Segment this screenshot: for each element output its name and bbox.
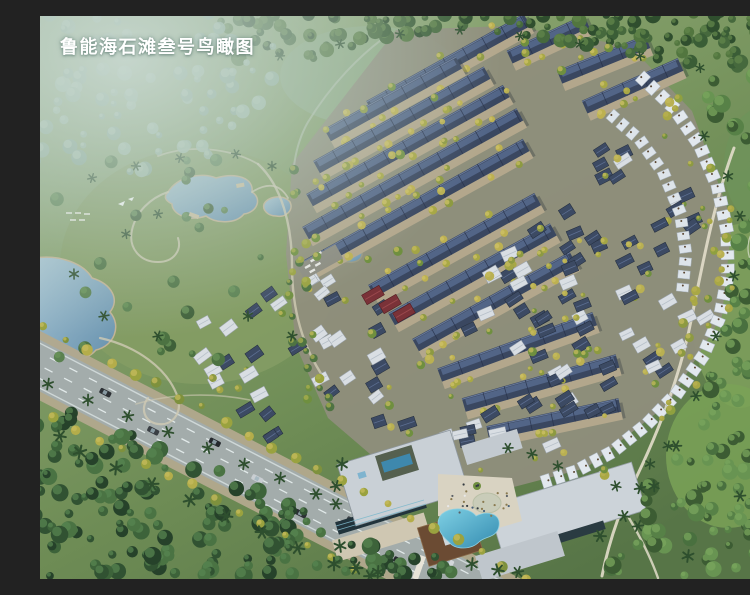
rendering-canvas xyxy=(40,16,750,579)
arc-row-house xyxy=(679,257,692,266)
fog-overlay xyxy=(40,16,510,366)
arc-row-house xyxy=(678,270,691,279)
arc-row-house xyxy=(677,231,690,241)
aerial-rendering: 鲁能海石滩叁号鸟瞰图 xyxy=(40,16,750,579)
arc-row-house xyxy=(676,283,689,292)
image-title: 鲁能海石滩叁号鸟瞰图 xyxy=(60,33,255,59)
arc-row-house xyxy=(679,244,692,254)
arc-row-house xyxy=(675,218,688,228)
